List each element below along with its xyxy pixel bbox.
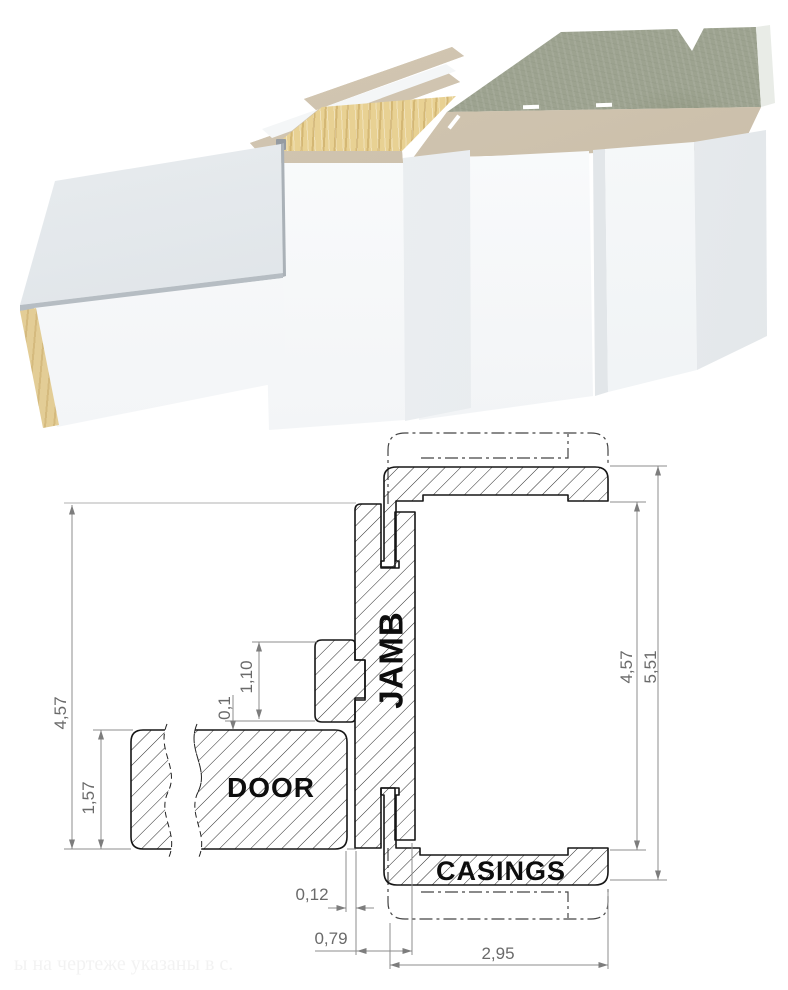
dim-frame-depth-right: 4,57 [617, 650, 636, 683]
dim-jamb-width: 0,79 [314, 929, 347, 948]
door-frame-3d-render [0, 0, 788, 430]
cross-section-drawing: 4,57 1,57 1,10 0,1 4,57 5,51 0,12 0,79 2… [0, 430, 788, 990]
dim-door-thickness: 1,57 [79, 781, 98, 814]
watermark-text: ы на чертеже указаны в с. [14, 953, 233, 975]
label-jamb: JAMB [373, 611, 410, 709]
label-door: DOOR [227, 772, 315, 803]
dim-stop-height: 1,10 [237, 660, 256, 693]
laminate-miter-slit [596, 103, 612, 108]
dim-stop-to-door-gap: 0,1 [215, 696, 234, 720]
dim-frame-depth-left: 4,57 [51, 696, 70, 729]
dim-overall-width: 5,51 [641, 650, 660, 683]
page: 4,57 1,57 1,10 0,1 4,57 5,51 0,12 0,79 2… [0, 0, 788, 990]
dim-casing-width: 2,95 [481, 944, 514, 963]
laminate-miter-slit [523, 105, 539, 110]
label-casings: CASINGS [436, 856, 566, 886]
dim-door-to-jamb-gap: 0,12 [295, 885, 328, 904]
drawing-svg: 4,57 1,57 1,10 0,1 4,57 5,51 0,12 0,79 2… [0, 430, 788, 990]
